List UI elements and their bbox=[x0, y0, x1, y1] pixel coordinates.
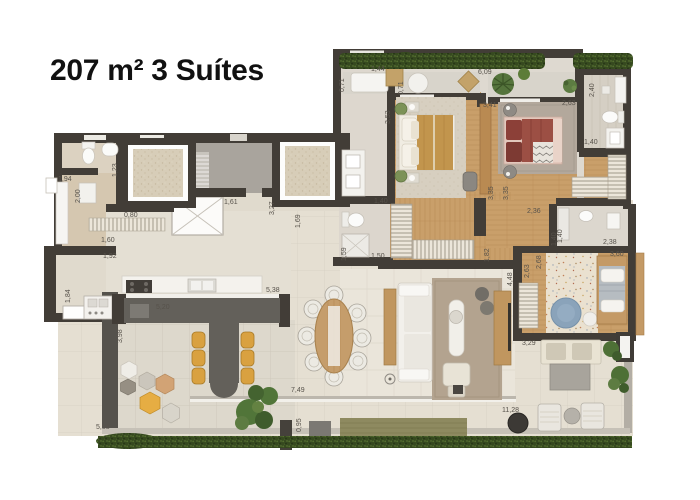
svg-text:3,41: 3,41 bbox=[483, 102, 497, 109]
svg-text:1,61: 1,61 bbox=[224, 199, 238, 206]
svg-text:1,84: 1,84 bbox=[65, 289, 72, 303]
svg-text:3,60: 3,60 bbox=[610, 251, 624, 258]
svg-text:1,50: 1,50 bbox=[371, 253, 385, 260]
svg-text:2,38: 2,38 bbox=[603, 239, 617, 246]
svg-text:2,68: 2,68 bbox=[536, 255, 543, 269]
svg-text:3,27: 3,27 bbox=[269, 201, 276, 215]
svg-text:3,29: 3,29 bbox=[522, 340, 536, 347]
svg-text:1,23: 1,23 bbox=[112, 163, 119, 177]
svg-text:11,28: 11,28 bbox=[502, 407, 519, 414]
svg-text:6,09: 6,09 bbox=[478, 69, 492, 76]
svg-text:0,80: 0,80 bbox=[124, 212, 138, 219]
svg-text:3,35: 3,35 bbox=[503, 186, 510, 200]
svg-text:0,71: 0,71 bbox=[339, 78, 346, 92]
svg-text:207 m² 3 Suítes: 207 m² 3 Suítes bbox=[50, 54, 264, 87]
svg-text:1,40: 1,40 bbox=[374, 198, 388, 205]
svg-text:1,40: 1,40 bbox=[584, 139, 598, 146]
svg-text:4,48: 4,48 bbox=[507, 272, 514, 286]
svg-text:5,20: 5,20 bbox=[156, 304, 170, 311]
svg-text:3,35: 3,35 bbox=[488, 186, 495, 200]
svg-text:2,63: 2,63 bbox=[562, 100, 576, 107]
svg-text:3,98: 3,98 bbox=[117, 329, 124, 343]
svg-text:1,59: 1,59 bbox=[341, 247, 348, 261]
svg-text:1,40: 1,40 bbox=[557, 229, 564, 243]
svg-text:5,53: 5,53 bbox=[96, 424, 110, 431]
svg-text:2,40: 2,40 bbox=[589, 83, 596, 97]
svg-text:1,92: 1,92 bbox=[103, 253, 117, 260]
svg-text:1,69: 1,69 bbox=[295, 214, 302, 228]
svg-text:7,49: 7,49 bbox=[291, 387, 305, 394]
svg-text:2,63: 2,63 bbox=[524, 264, 531, 278]
svg-text:0,95: 0,95 bbox=[296, 418, 303, 432]
svg-text:2,00: 2,00 bbox=[75, 189, 82, 203]
svg-text:0,71: 0,71 bbox=[398, 81, 405, 95]
svg-text:1,60: 1,60 bbox=[101, 237, 115, 244]
svg-text:1,94: 1,94 bbox=[58, 176, 72, 183]
svg-text:5,38: 5,38 bbox=[266, 287, 280, 294]
svg-text:1,82: 1,82 bbox=[484, 248, 491, 262]
svg-text:1,44: 1,44 bbox=[371, 66, 385, 73]
svg-text:2,36: 2,36 bbox=[527, 208, 541, 215]
svg-text:3,53: 3,53 bbox=[385, 110, 392, 124]
